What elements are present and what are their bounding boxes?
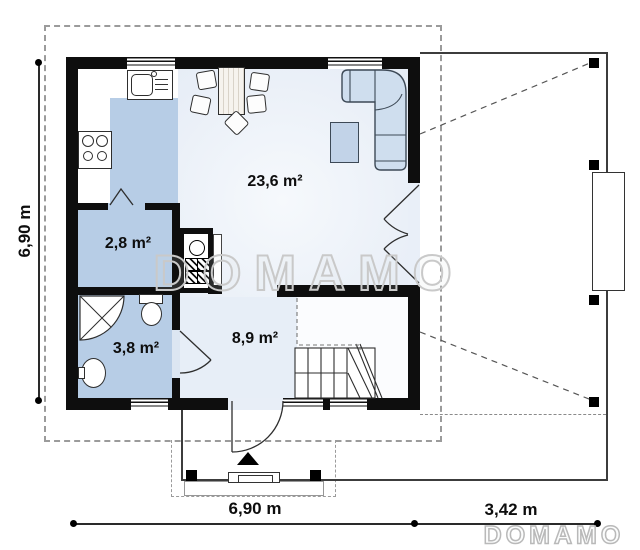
window-kitchen (127, 57, 175, 69)
stairs-zone-floor (297, 297, 408, 398)
window-living (328, 57, 382, 69)
sink-basin-icon (131, 74, 153, 96)
terrace-side-element (592, 172, 625, 291)
room-label-bathroom: 3,8 m² (113, 340, 159, 358)
dining-table-icon (218, 67, 245, 115)
room-label-living: 23,6 m² (247, 173, 302, 191)
coffee-table-icon (330, 122, 359, 163)
dimension-label-left: 6,90 m (15, 205, 35, 258)
terrace-post (589, 58, 599, 68)
storage-door-opening (108, 203, 145, 210)
dimension-label-terrace: 3,42 m (485, 500, 538, 520)
bathroom-door-opening (172, 330, 180, 378)
dimension-label-bottom: 6,90 m (229, 499, 282, 519)
porch-post (310, 470, 321, 481)
entrance-arrow-icon (237, 452, 259, 465)
kitchen-zone (110, 98, 178, 203)
window-stairs (330, 398, 367, 410)
entrance-door-opening (228, 398, 283, 410)
room-label-hall: 8,9 m² (232, 330, 278, 348)
toilet-icon (141, 302, 162, 326)
terrace-post (589, 397, 599, 407)
window-hall (283, 398, 323, 410)
interior-wall (66, 203, 108, 210)
chair-icon (196, 69, 218, 90)
drainer-icon (155, 79, 168, 92)
interior-wall (172, 378, 180, 398)
dimension-dot (70, 520, 77, 527)
chair-icon (246, 94, 267, 114)
washbasin-faucet-icon (78, 367, 85, 379)
terrace-post (589, 160, 599, 170)
porch-left-edge (181, 410, 183, 480)
terrace-dashed-line (420, 414, 606, 415)
burner-icon (96, 135, 108, 147)
dimension-dot (35, 397, 42, 404)
burner-icon (82, 135, 94, 147)
window-bathroom (131, 398, 168, 410)
terrace-post (589, 295, 599, 305)
terrace-top-edge (420, 52, 608, 54)
floor-plan: 6,90 m 6,90 m 3,42 m 23,6 m² 2,8 m² 3,8 … (0, 0, 640, 550)
porch-post (186, 470, 197, 481)
terrace-roof-diagonals (420, 63, 594, 401)
faucet-icon (151, 71, 157, 77)
burner-icon (83, 151, 93, 161)
room-label-storage: 2,8 m² (105, 235, 151, 253)
burner-icon (97, 151, 107, 161)
brand-logo: DOMAMO (484, 522, 625, 550)
chair-icon (189, 94, 211, 116)
dimension-dot (411, 520, 418, 527)
dimension-line-left (38, 62, 40, 401)
watermark: DOMAMO (153, 244, 464, 302)
dimension-dot (35, 59, 42, 66)
chair-icon (249, 72, 270, 92)
porch-step (238, 475, 273, 483)
porch-deck (184, 481, 324, 496)
